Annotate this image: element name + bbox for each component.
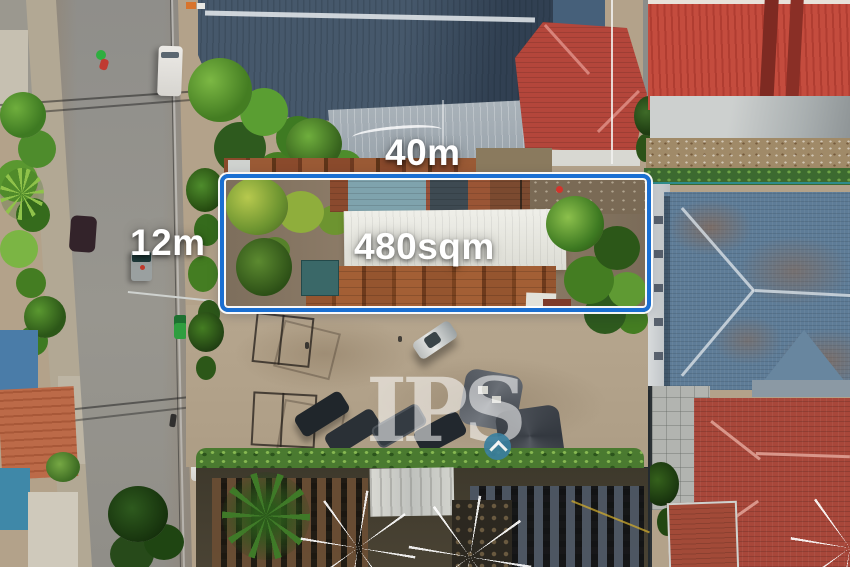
white-truck-windshield <box>161 52 179 58</box>
gray-walkway-strip <box>752 380 850 397</box>
tree-col-below-left <box>188 312 224 352</box>
chevron-up-icon <box>489 440 507 458</box>
shrub-bottom-left <box>46 452 80 482</box>
palm-tree <box>222 472 310 560</box>
depth-dimension-label: 12m <box>130 224 206 261</box>
big-red-warehouse-roof <box>648 0 850 110</box>
red-warehouse-lower-slope <box>650 96 850 144</box>
red-hip-roof-house <box>515 18 647 158</box>
white-wall-bottom-left <box>28 492 78 567</box>
aerial-property-photo: 40m 12m 480sqm IPS <box>0 0 850 567</box>
dark-trees-bottom-left <box>108 486 168 542</box>
tiny-van-top-edge <box>197 3 205 9</box>
white-pole-line <box>611 0 613 164</box>
teal-roof-building <box>0 468 30 530</box>
villa-eave-shadow <box>664 196 670 386</box>
small-white-shed-upper <box>228 160 250 172</box>
pickup-passenger-dot <box>140 265 145 270</box>
frontage-dimension-label: 40m <box>385 134 461 171</box>
palm-fronds-left <box>0 168 44 220</box>
dark-car-upper <box>69 215 97 253</box>
tiny-truck-top-edge <box>186 2 196 9</box>
pedestrian-dot-1 <box>305 342 309 349</box>
wall-windows <box>654 196 663 386</box>
tree-col-left-of-property <box>186 168 224 212</box>
pedestrian-dot-2 <box>398 336 402 342</box>
red-villa-small-hip <box>667 501 739 567</box>
scaffold-frame-1 <box>252 312 315 368</box>
area-dimension-label: 480sqm <box>354 228 495 265</box>
tree-cluster-left-top <box>0 92 46 138</box>
teal-guard-rail <box>646 182 850 184</box>
ips-watermark-badge <box>484 433 511 460</box>
tree-cluster-top-mid <box>188 58 252 122</box>
